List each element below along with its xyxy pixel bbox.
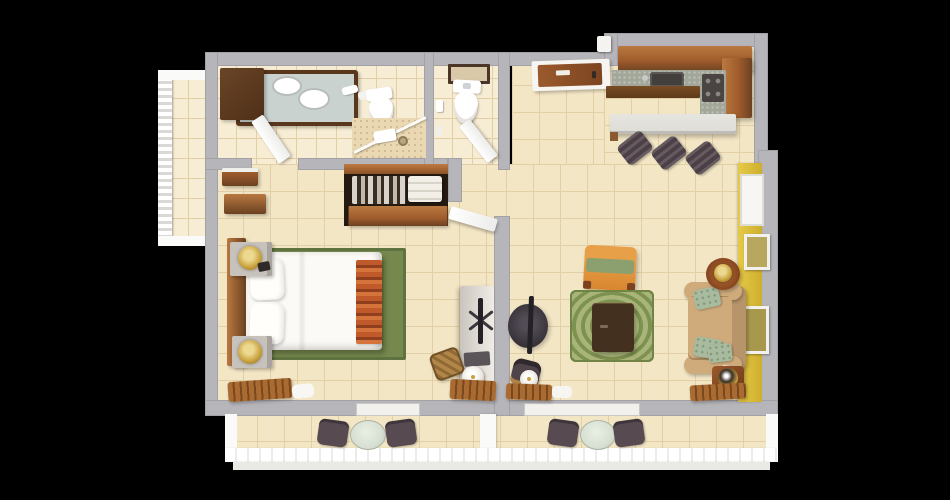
bistro-chair-3 bbox=[546, 418, 579, 448]
hall-shelf-1 bbox=[222, 168, 258, 186]
vanity-sink-1 bbox=[272, 76, 302, 96]
coffee-table bbox=[592, 303, 634, 352]
living-cushion bbox=[552, 386, 572, 398]
vanity-tower bbox=[220, 68, 264, 120]
wc-paper-roll bbox=[436, 126, 442, 136]
wall-closet-stub bbox=[448, 158, 462, 202]
bed-runner bbox=[356, 260, 382, 344]
lamp-finial bbox=[527, 377, 531, 381]
chaise-green-cushion bbox=[586, 258, 635, 274]
toilet-flush-button bbox=[463, 83, 471, 89]
kitchen-right-cabinets bbox=[722, 58, 752, 118]
rear-balcony-floor bbox=[230, 414, 772, 450]
wall-right-kitchen bbox=[754, 33, 768, 166]
console-towel bbox=[464, 351, 491, 367]
wall-left bbox=[205, 52, 218, 416]
breakfast-bar bbox=[610, 114, 736, 134]
toilet-bowl bbox=[453, 90, 479, 124]
balcony-railing bbox=[225, 448, 778, 462]
sofa-pillow-3 bbox=[707, 343, 733, 364]
chaise-lounge bbox=[583, 245, 637, 292]
bedroom-slider-window bbox=[356, 403, 420, 416]
living-slider-window bbox=[524, 403, 640, 416]
wardrobe-top-rail bbox=[344, 164, 448, 174]
kitchen-base-cabinet-face bbox=[606, 86, 700, 98]
breakfast-bar-leg bbox=[610, 132, 618, 141]
side-balcony-rail-bottom bbox=[158, 236, 210, 246]
floorplan-3d-render bbox=[0, 0, 950, 500]
bedroom-tv-panel bbox=[478, 298, 483, 344]
bistro-table-right bbox=[580, 420, 616, 450]
coffee-table-handle bbox=[600, 325, 608, 328]
accent-wall-window bbox=[740, 174, 764, 226]
bedroom-cushion bbox=[291, 383, 314, 399]
wardrobe-linens bbox=[408, 176, 442, 202]
kitchen-sink bbox=[650, 72, 684, 87]
sofa bbox=[682, 282, 746, 374]
entry-door bbox=[538, 63, 603, 87]
side-balcony-rail-top bbox=[158, 70, 210, 80]
vanity-sink-2 bbox=[298, 88, 330, 110]
side-table-top-lamp bbox=[714, 264, 732, 282]
bedroom-bench-right bbox=[450, 379, 497, 401]
bistro-table-left bbox=[350, 420, 386, 450]
nightstand-bottom-lamp bbox=[238, 340, 262, 364]
lamp-finial bbox=[471, 375, 475, 379]
entry-door-handle bbox=[592, 71, 596, 78]
entry-door-sign bbox=[556, 70, 570, 75]
kitchen-faucet bbox=[642, 75, 648, 81]
wc-paper-holder bbox=[436, 100, 443, 112]
side-balcony-railing bbox=[158, 70, 172, 246]
duvet-fold bbox=[298, 252, 306, 350]
bistro-chair-2 bbox=[384, 418, 417, 448]
wall-wc-right bbox=[498, 52, 510, 170]
framed-art-1 bbox=[744, 234, 770, 270]
bistro-chair-4 bbox=[612, 418, 645, 448]
wardrobe-hanging-clothes bbox=[352, 176, 406, 204]
thermostat bbox=[597, 36, 611, 52]
living-bench-right bbox=[690, 383, 747, 402]
wall-top-right bbox=[604, 33, 768, 47]
bistro-chair-1 bbox=[316, 418, 349, 448]
hall-shelf-2 bbox=[224, 194, 266, 214]
kitchen-range bbox=[702, 74, 724, 102]
shower-drain bbox=[398, 136, 408, 146]
living-bench-left bbox=[506, 383, 553, 401]
side-balcony-floor bbox=[168, 78, 210, 238]
balcony-fascia bbox=[233, 462, 770, 470]
wc-toilet bbox=[449, 79, 483, 127]
chaise-foot-left bbox=[583, 281, 591, 289]
wardrobe-lower-cabinet bbox=[348, 206, 448, 226]
